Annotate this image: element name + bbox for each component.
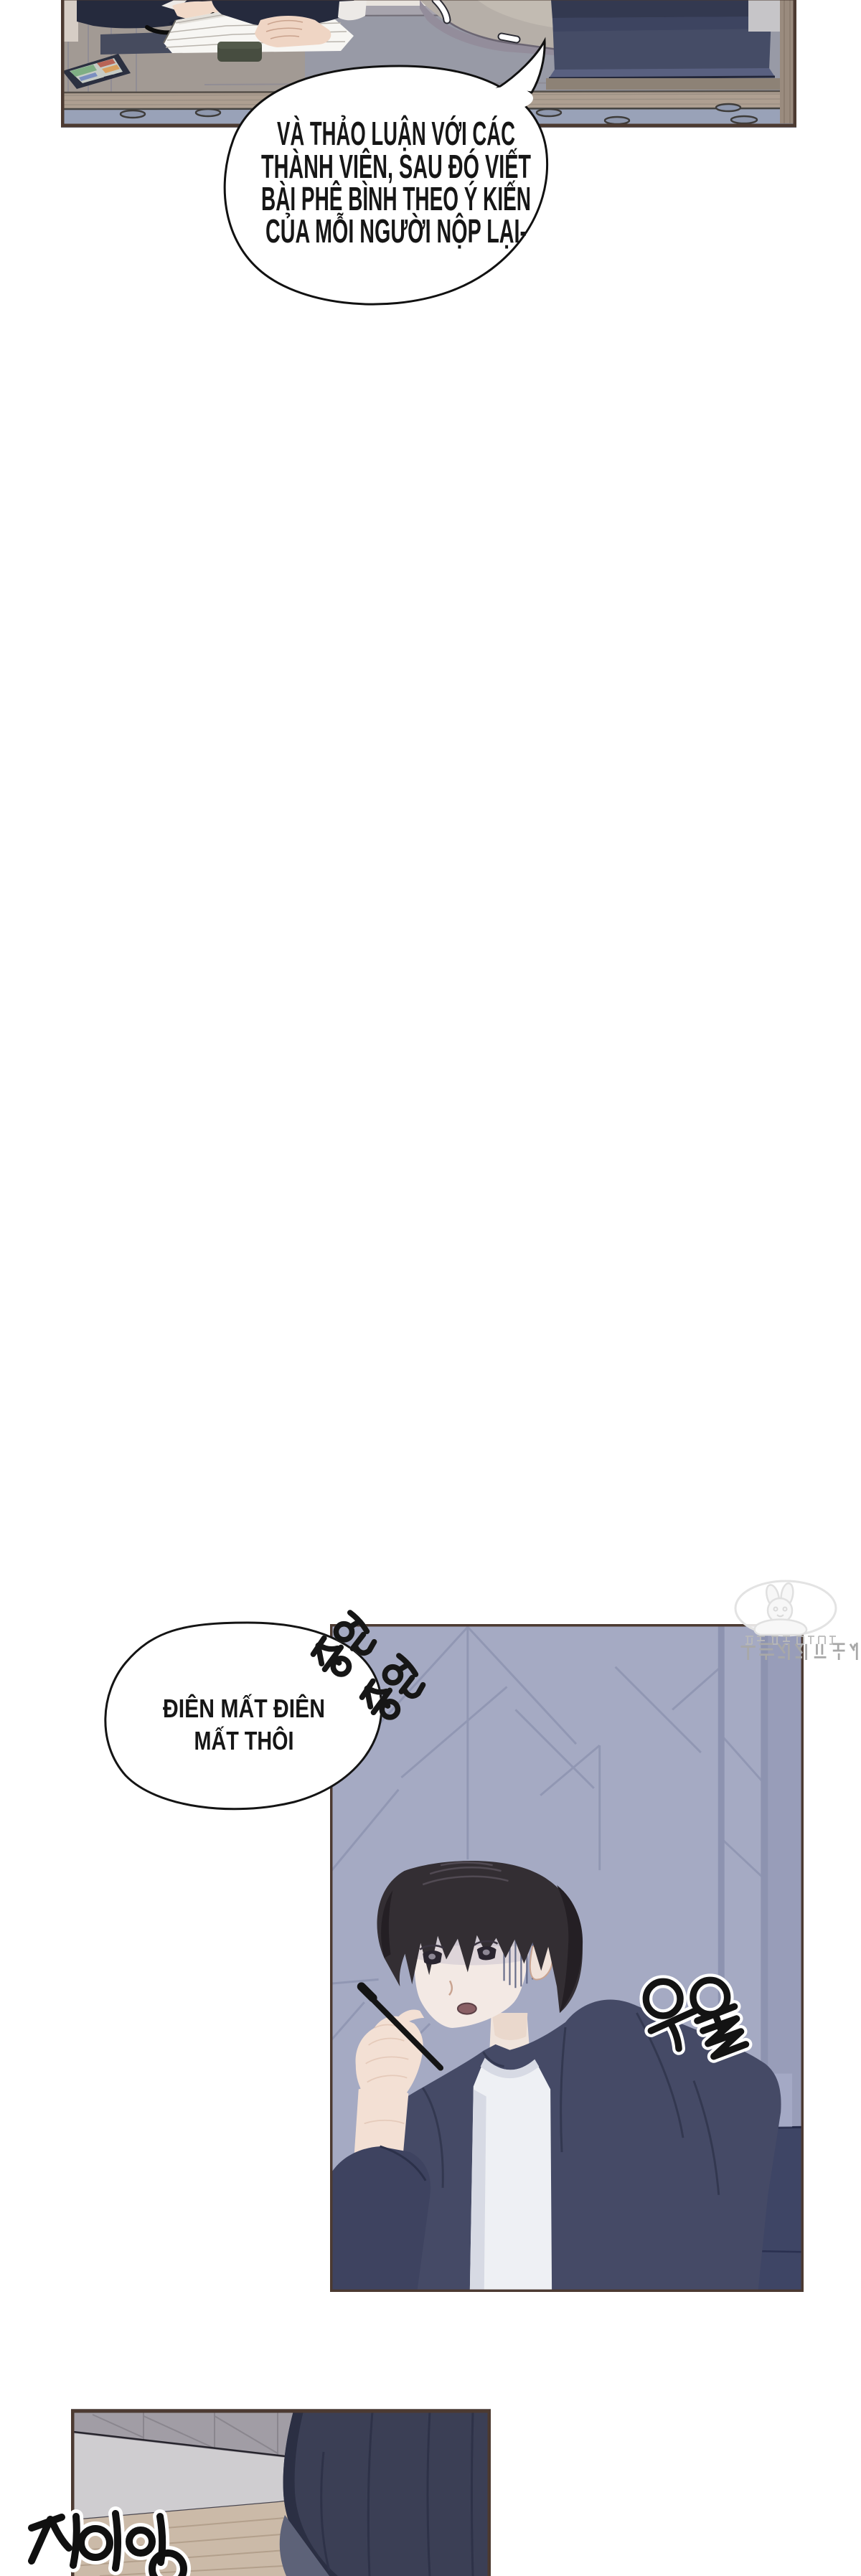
svg-text:VÀ THẢO LUẬN VỚI CÁC: VÀ THẢO LUẬN VỚI CÁC [277,115,515,152]
svg-text:CỦA MỖI NGƯỜI NỘP LẠI-: CỦA MỖI NGƯỜI NỘP LẠI- [265,212,527,250]
svg-text:MẤT THÔI: MẤT THÔI [194,1725,294,1755]
